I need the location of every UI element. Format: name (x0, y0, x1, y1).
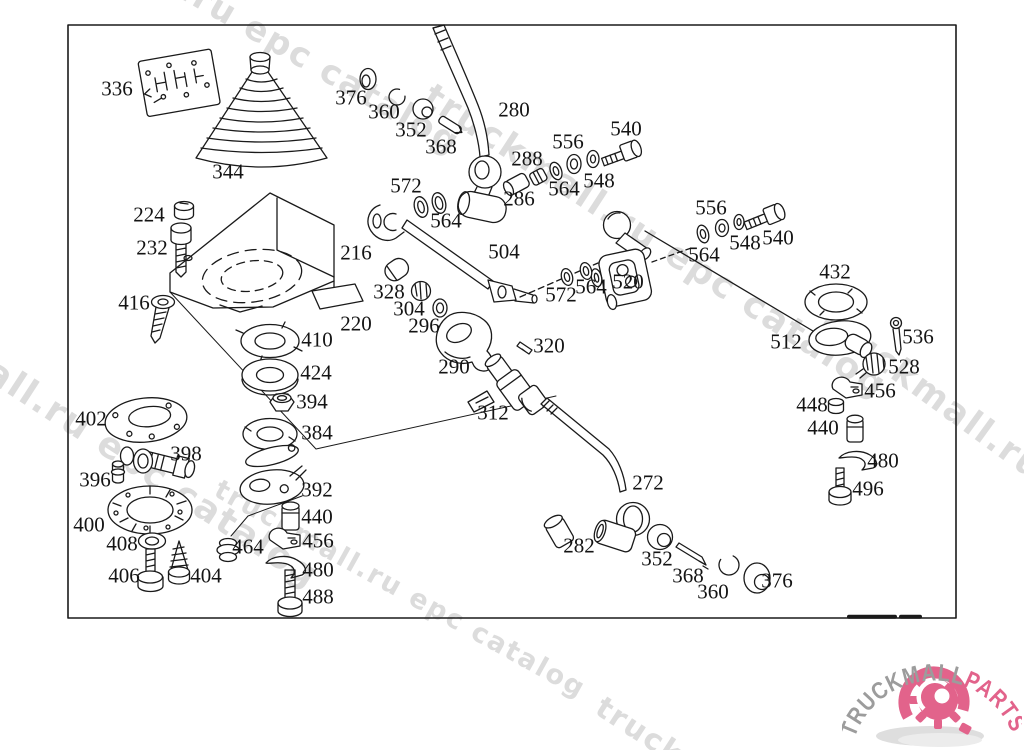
part-label-410: 410 (301, 328, 333, 353)
part-label-272: 272 (632, 471, 664, 496)
part-label-396: 396 (79, 468, 111, 493)
part-label-572: 572 (545, 283, 577, 308)
part-label-480: 480 (302, 558, 334, 583)
part-label-548: 548 (583, 169, 615, 194)
truckmall-logo: TRUCKMALLPARTS (842, 640, 1022, 750)
part-label-548: 548 (729, 231, 761, 256)
part-label-448: 448 (796, 393, 828, 418)
part-label-488: 488 (302, 585, 334, 610)
part-label-290: 290 (438, 355, 470, 380)
part-label-504: 504 (488, 240, 520, 265)
part-label-336: 336 (101, 77, 133, 102)
part-label-286: 286 (503, 187, 535, 212)
part-label-344: 344 (212, 160, 244, 185)
part-label-496: 496 (852, 477, 884, 502)
part-label-402: 402 (75, 407, 107, 432)
part-label-406: 406 (108, 564, 140, 589)
part-label-404: 404 (190, 564, 222, 589)
part-label-394: 394 (296, 390, 328, 415)
part-label-456: 456 (864, 379, 896, 404)
part-label-572: 572 (390, 174, 422, 199)
part-label-540: 540 (610, 117, 642, 142)
part-label-424: 424 (300, 361, 332, 386)
part-label-416: 416 (118, 291, 150, 316)
part-label-520: 520 (612, 270, 644, 295)
part-label-408: 408 (106, 532, 138, 557)
part-label-440: 440 (807, 416, 839, 441)
part-label-352: 352 (395, 118, 427, 143)
part-label-464: 464 (232, 535, 264, 560)
part-label-360: 360 (697, 580, 729, 605)
part-label-320: 320 (533, 334, 565, 359)
part-label-232: 232 (136, 236, 168, 261)
part-label-398: 398 (170, 442, 202, 467)
part-label-440: 440 (301, 505, 333, 530)
part-label-368: 368 (425, 135, 457, 160)
part-label-216: 216 (340, 241, 372, 266)
part-label-376: 376 (335, 86, 367, 111)
part-label-480: 480 (867, 449, 899, 474)
part-label-312: 312 (477, 401, 509, 426)
part-label-564: 564 (688, 243, 720, 268)
part-label-556: 556 (552, 130, 584, 155)
part-label-220: 220 (340, 312, 372, 337)
part-label-456: 456 (302, 529, 334, 554)
part-label-432: 432 (819, 260, 851, 285)
part-label-352: 352 (641, 547, 673, 572)
part-label-224: 224 (133, 203, 165, 228)
part-label-512: 512 (770, 330, 802, 355)
part-label-556: 556 (695, 196, 727, 221)
part-label-540: 540 (762, 226, 794, 251)
part-label-296: 296 (408, 314, 440, 339)
part-label-536: 536 (902, 325, 934, 350)
part-label-564: 564 (430, 209, 462, 234)
part-label-384: 384 (301, 421, 333, 446)
parts-diagram-page: truckmall.ru epc catalogtruckmall.ru epc… (0, 0, 1024, 750)
part-label-280: 280 (498, 98, 530, 123)
part-label-400: 400 (73, 513, 105, 538)
part-label-282: 282 (563, 534, 595, 559)
part-label-376: 376 (761, 569, 793, 594)
part-label-528: 528 (888, 355, 920, 380)
part-label-564: 564 (575, 275, 607, 300)
part-label-564: 564 (548, 177, 580, 202)
part-label-288: 288 (511, 147, 543, 172)
part-label-392: 392 (301, 478, 333, 503)
part-labels-layer: 3363443763603523682802885565405645482865… (0, 0, 1024, 750)
